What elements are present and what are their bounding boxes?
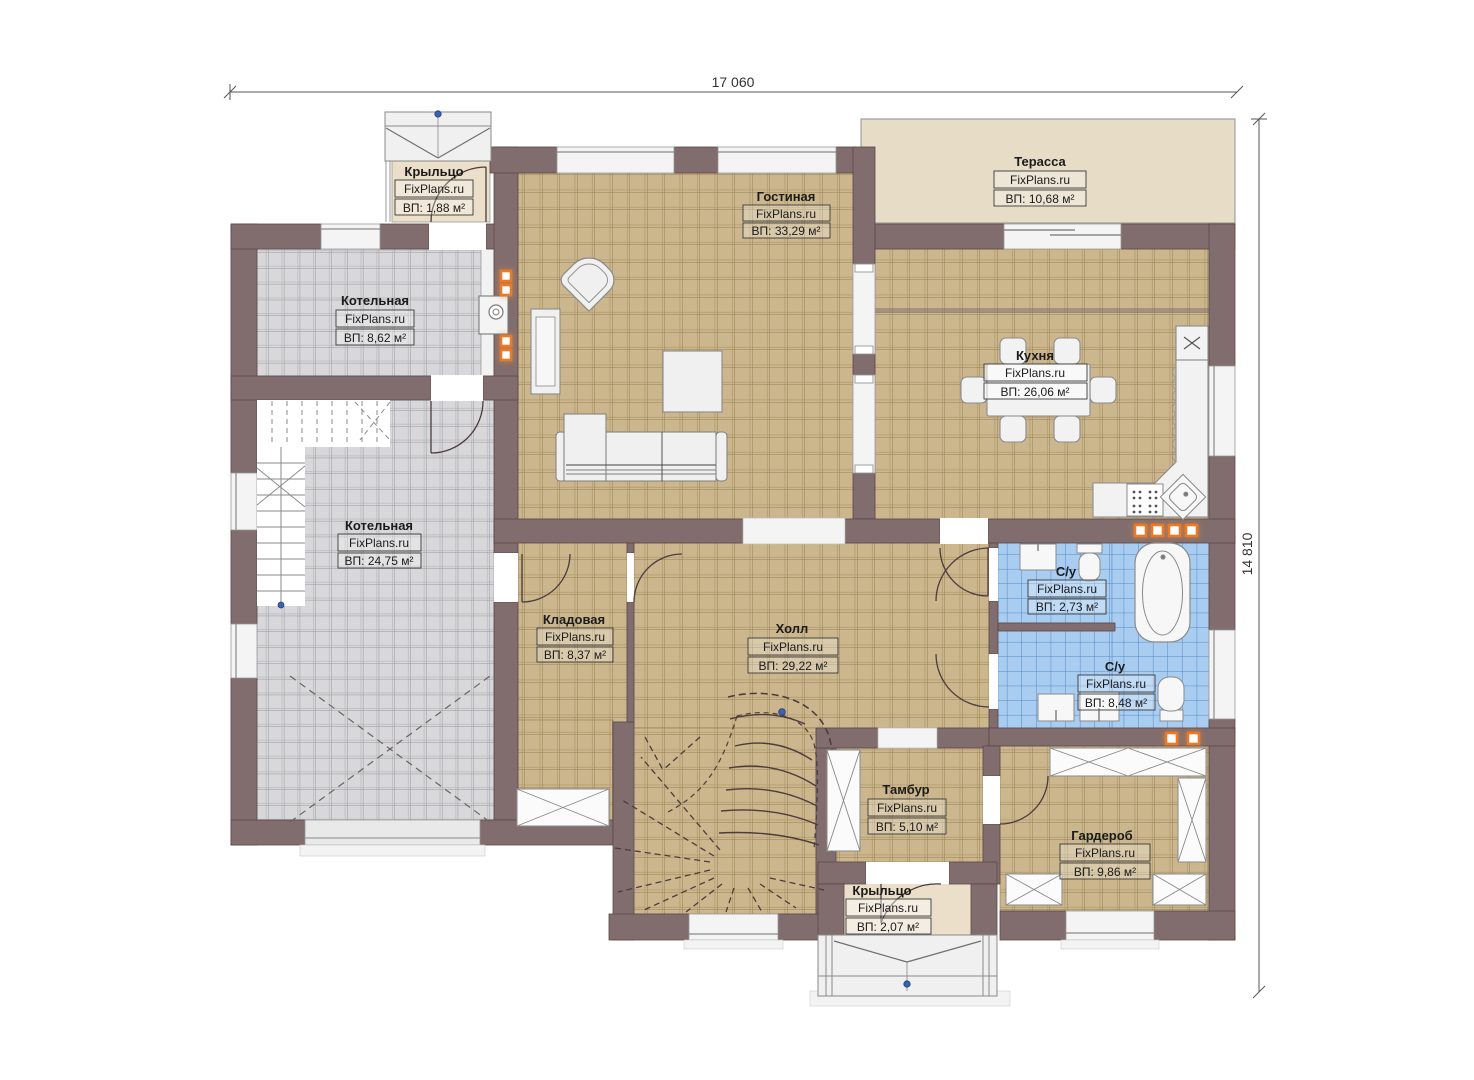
svg-text:Котельная: Котельная [341,293,409,308]
svg-text:FixPlans.ru: FixPlans.ru [1086,677,1146,691]
svg-text:ВП: 8,37 м²: ВП: 8,37 м² [544,648,606,662]
svg-text:ВП: 29,22 м²: ВП: 29,22 м² [759,659,828,673]
svg-text:FixPlans.ru: FixPlans.ru [349,536,409,550]
svg-text:FixPlans.ru: FixPlans.ru [545,630,605,644]
svg-text:ВП: 33,29 м²: ВП: 33,29 м² [752,224,821,238]
svg-text:ВП: 2,07 м²: ВП: 2,07 м² [857,920,919,934]
svg-text:FixPlans.ru: FixPlans.ru [1075,846,1135,860]
svg-text:ВП: 1,88 м²: ВП: 1,88 м² [403,201,465,215]
svg-text:Крыльцо: Крыльцо [404,164,463,179]
svg-text:FixPlans.ru: FixPlans.ru [877,801,937,815]
svg-text:Кухня: Кухня [1016,348,1054,363]
svg-text:Котельная: Котельная [345,518,413,533]
svg-text:FixPlans.ru: FixPlans.ru [1037,582,1097,596]
svg-text:ВП: 8,62 м²: ВП: 8,62 м² [344,331,406,345]
svg-text:Тамбур: Тамбур [882,782,929,797]
svg-text:Кладовая: Кладовая [543,612,605,627]
svg-text:FixPlans.ru: FixPlans.ru [763,640,823,654]
svg-text:Гардероб: Гардероб [1071,828,1132,843]
svg-text:17 060: 17 060 [712,74,755,90]
svg-text:С/у: С/у [1105,659,1126,674]
svg-text:FixPlans.ru: FixPlans.ru [404,182,464,196]
svg-text:14 810: 14 810 [1239,532,1255,575]
svg-text:FixPlans.ru: FixPlans.ru [1010,173,1070,187]
svg-text:ВП: 8,48 м²: ВП: 8,48 м² [1085,696,1147,710]
svg-text:FixPlans.ru: FixPlans.ru [345,312,405,326]
svg-text:Гостиная: Гостиная [757,189,816,204]
svg-text:FixPlans.ru: FixPlans.ru [858,901,918,915]
svg-text:ВП: 2,73 м²: ВП: 2,73 м² [1036,600,1098,614]
svg-text:ВП: 24,75 м²: ВП: 24,75 м² [345,554,414,568]
svg-text:Терасса: Терасса [1014,154,1066,169]
svg-text:С/у: С/у [1056,564,1077,579]
svg-text:ВП: 9,86 м²: ВП: 9,86 м² [1074,865,1136,879]
svg-text:FixPlans.ru: FixPlans.ru [1005,366,1065,380]
svg-text:Крыльцо: Крыльцо [852,883,911,898]
svg-text:ВП: 26,06 м²: ВП: 26,06 м² [1001,385,1070,399]
svg-text:Холл: Холл [776,621,809,636]
svg-text:FixPlans.ru: FixPlans.ru [756,207,816,221]
svg-text:ВП: 10,68 м²: ВП: 10,68 м² [1006,192,1075,206]
svg-text:ВП: 5,10 м²: ВП: 5,10 м² [876,820,938,834]
